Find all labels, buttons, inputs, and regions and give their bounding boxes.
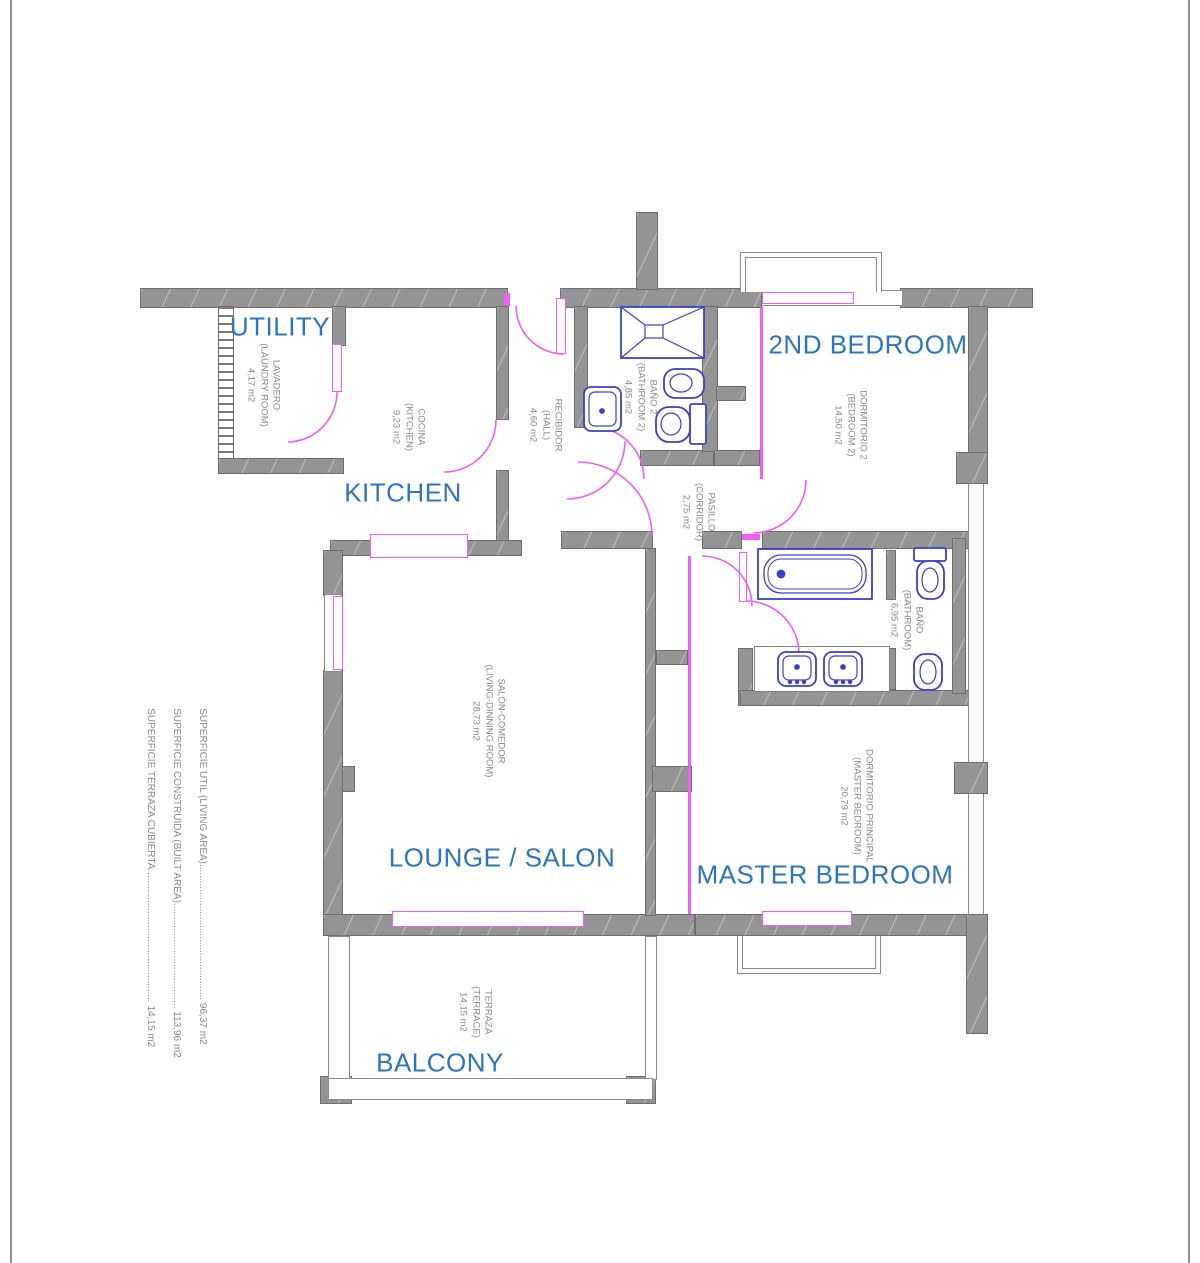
window-bedroom2 bbox=[762, 292, 854, 304]
balcony-rail-left bbox=[328, 936, 350, 1080]
room-label-lounge: LOUNGE / SALON bbox=[389, 843, 616, 874]
room-sublabel-corridor: PASILLO(CORRIDOR)2,75 m2 bbox=[679, 483, 716, 541]
wall-lounge-left bbox=[323, 670, 343, 916]
bathtub-icon bbox=[758, 549, 872, 599]
summary-line-terrace-area: SUPERFICIE TERRAZA CUBIERTA.............… bbox=[137, 708, 163, 1058]
balcony-rail-right bbox=[645, 936, 657, 1080]
partition-line-bedroom2 bbox=[760, 307, 763, 479]
wall-kitchen-right-upper bbox=[496, 306, 509, 420]
room-label-bedroom2: 2ND BEDROOM bbox=[768, 330, 967, 361]
room-label-utility: UTILITY bbox=[230, 312, 330, 343]
door-arc-bathroom2 bbox=[592, 427, 644, 479]
room-sublabel-bathroom2: BAÑO 2(BATHROOM 2)4,85 m2 bbox=[621, 363, 658, 431]
toilet-icon bbox=[656, 404, 706, 444]
window-lounge-left-frame bbox=[333, 596, 343, 670]
wall-bathroom-top bbox=[762, 531, 970, 549]
partition-line-master bbox=[688, 556, 691, 914]
window-lounge-slider bbox=[392, 911, 584, 927]
wall-bathroom2-bedroom2 bbox=[702, 306, 718, 452]
room-sublabel-kitchen: COCINA(KITCHEN)9,23 m2 bbox=[389, 403, 426, 451]
wall-top-left bbox=[140, 288, 508, 308]
room-sublabel-lounge: SALÓN-COMEDOR(LIVING-DINNING ROOM)28,73 … bbox=[469, 665, 506, 778]
room-sublabel-utility: LAVADERO(LAUNDRY ROOM)4,17 m2 bbox=[244, 343, 281, 427]
door-leaf-bathroom bbox=[739, 552, 747, 602]
wall-column-right-2 bbox=[954, 762, 988, 794]
wall-top-right bbox=[900, 288, 1033, 308]
wall-stub-1 bbox=[716, 386, 746, 401]
wall-bathroom-bottom bbox=[740, 690, 970, 706]
plan-overlay bbox=[0, 0, 1200, 1263]
wall-corridor-bottom bbox=[561, 531, 653, 549]
window-master bbox=[762, 911, 852, 926]
wall-hall-bathroom2 bbox=[574, 306, 588, 428]
wall-lounge-left-stub bbox=[323, 550, 343, 596]
door-leaf-utility bbox=[332, 344, 342, 392]
vanity-counter bbox=[754, 646, 890, 692]
door-arc-utility bbox=[288, 392, 337, 442]
wall-divider-pier bbox=[652, 766, 692, 792]
summary-line-living-area: SUPERFICIE UTIL (LIVING AREA)...........… bbox=[189, 708, 215, 1058]
bidet-icon bbox=[664, 369, 704, 398]
door-leaf-entrance bbox=[556, 298, 566, 354]
bay-window-bedroom2 bbox=[740, 252, 882, 292]
wall-bedroom2-right bbox=[968, 306, 988, 456]
page-border-right bbox=[1188, 0, 1190, 1263]
summary-line-built-area: SUPERFICIE CONSTRUIDA (BUILT AREA)......… bbox=[163, 708, 189, 1058]
door-jamb-bathroom bbox=[742, 534, 760, 540]
wall-column-right-1 bbox=[956, 452, 988, 484]
wall-top-middle bbox=[560, 288, 762, 308]
door-arc-hall-a bbox=[567, 441, 625, 499]
wall-duct-stub bbox=[636, 212, 658, 290]
wall-right-lower bbox=[966, 914, 988, 1034]
wall-divider-stub bbox=[656, 650, 688, 665]
door-jamb-entrance bbox=[504, 293, 510, 306]
balcony-rail-bottom bbox=[328, 1078, 653, 1100]
wall-bathroom-right bbox=[952, 538, 966, 694]
door-arc-kitchen bbox=[444, 420, 496, 472]
room-label-master: MASTER BEDROOM bbox=[697, 860, 954, 891]
shower-icon bbox=[621, 307, 704, 358]
page-border-left bbox=[10, 0, 12, 1263]
room-sublabel-bathroom: BAÑO(BATHROOM)6,95 m2 bbox=[887, 590, 924, 651]
window-right-lower bbox=[968, 794, 984, 914]
floor-plan: UTILITY KITCHEN 2ND BEDROOM LOUNGE / SAL… bbox=[0, 0, 1200, 1263]
room-sublabel-bedroom2: DORMITORIO 2(BEDROOM 2)14,50 m2 bbox=[831, 390, 868, 460]
door-arc-bedroom2 bbox=[753, 480, 806, 533]
wall-lounge-master-divider bbox=[645, 548, 656, 916]
room-sublabel-hall: RECIBIDOR(HALL)4,60 m2 bbox=[526, 399, 563, 452]
bay-window-master bbox=[737, 936, 881, 974]
wall-utility-bottom bbox=[218, 458, 344, 474]
window-kitchen bbox=[370, 534, 468, 558]
room-sublabel-balcony: TERRAZA(TERRACE)14,15 m2 bbox=[456, 986, 493, 1038]
room-sublabel-master: DORMITORIO PRINCIPAL(MASTER BEDROOM)20,7… bbox=[837, 749, 874, 863]
bidet-icon bbox=[914, 654, 942, 690]
area-summary: SUPERFICIE UTIL (LIVING AREA)...........… bbox=[137, 708, 215, 1058]
room-label-balcony: BALCONY bbox=[376, 1048, 504, 1079]
wall-bathroom2-bottom bbox=[640, 450, 714, 466]
wall-stub-2 bbox=[714, 450, 760, 466]
window-right-upper bbox=[968, 484, 984, 762]
wall-lounge-pillar bbox=[342, 766, 355, 792]
sink-icon bbox=[584, 387, 621, 431]
room-label-kitchen: KITCHEN bbox=[344, 478, 462, 509]
wall-utility-kitchen-stub bbox=[332, 306, 346, 346]
door-arc-hall-b bbox=[578, 462, 652, 536]
